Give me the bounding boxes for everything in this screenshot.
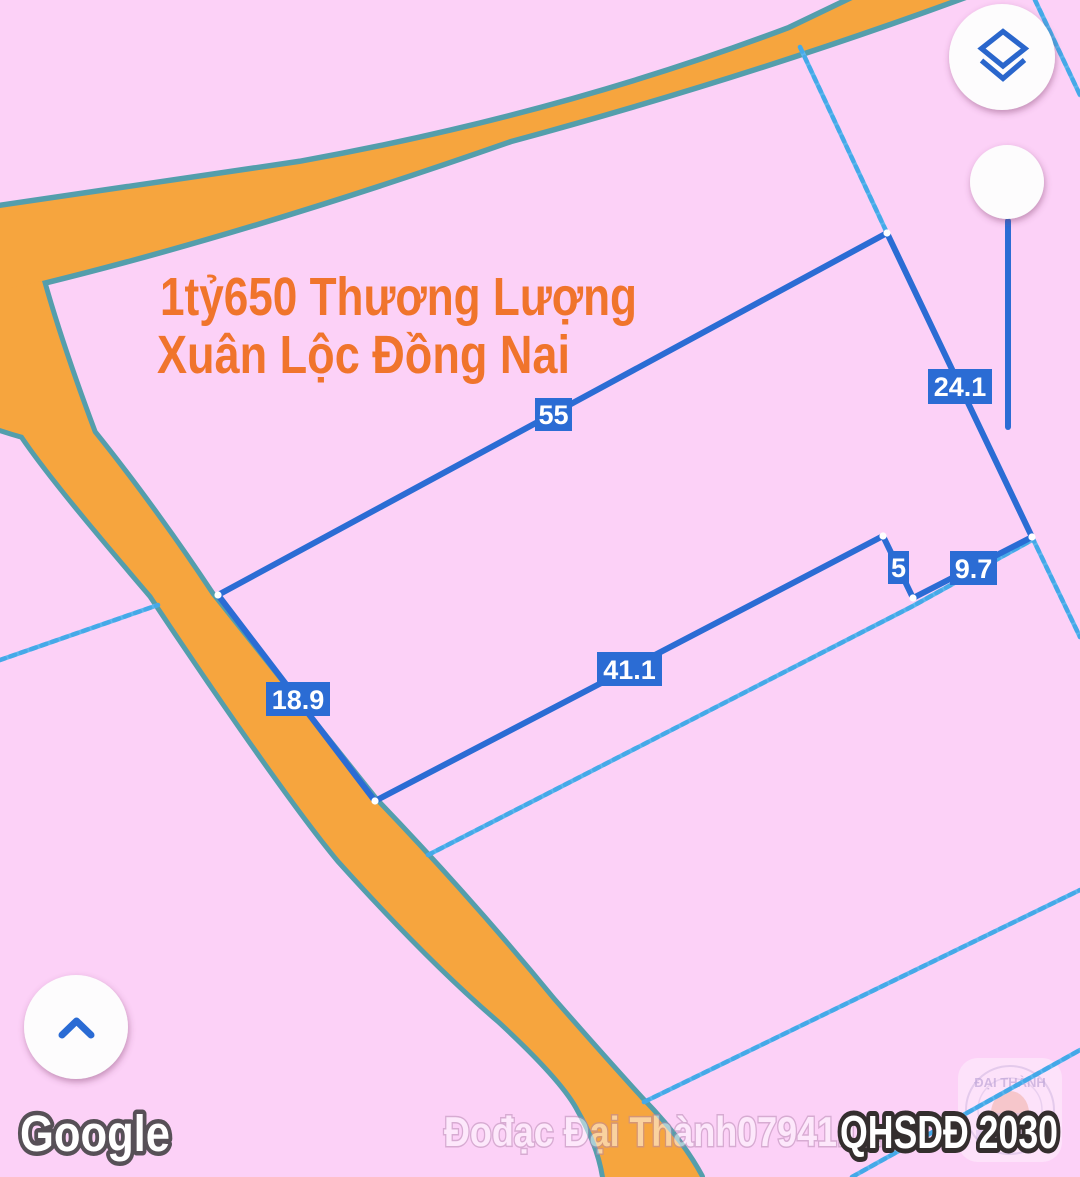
svg-text:5: 5 (891, 553, 906, 583)
svg-text:Đođạc Đại Thành07941: Đođạc Đại Thành07941 (444, 1108, 837, 1155)
svg-text:18.9: 18.9 (272, 685, 325, 715)
svg-text:24.1: 24.1 (934, 372, 987, 402)
svg-text:55: 55 (538, 400, 568, 430)
svg-text:9.7: 9.7 (955, 554, 993, 584)
svg-text:Xuân Lộc Đồng Nai: Xuân Lộc Đồng Nai (157, 325, 570, 385)
svg-text:Google: Google (20, 1105, 170, 1162)
svg-text:1tỷ650 Thương Lượng: 1tỷ650 Thương Lượng (160, 267, 637, 327)
svg-text:QHSDĐ 2030: QHSDĐ 2030 (840, 1106, 1058, 1158)
svg-text:41.1: 41.1 (603, 655, 656, 685)
